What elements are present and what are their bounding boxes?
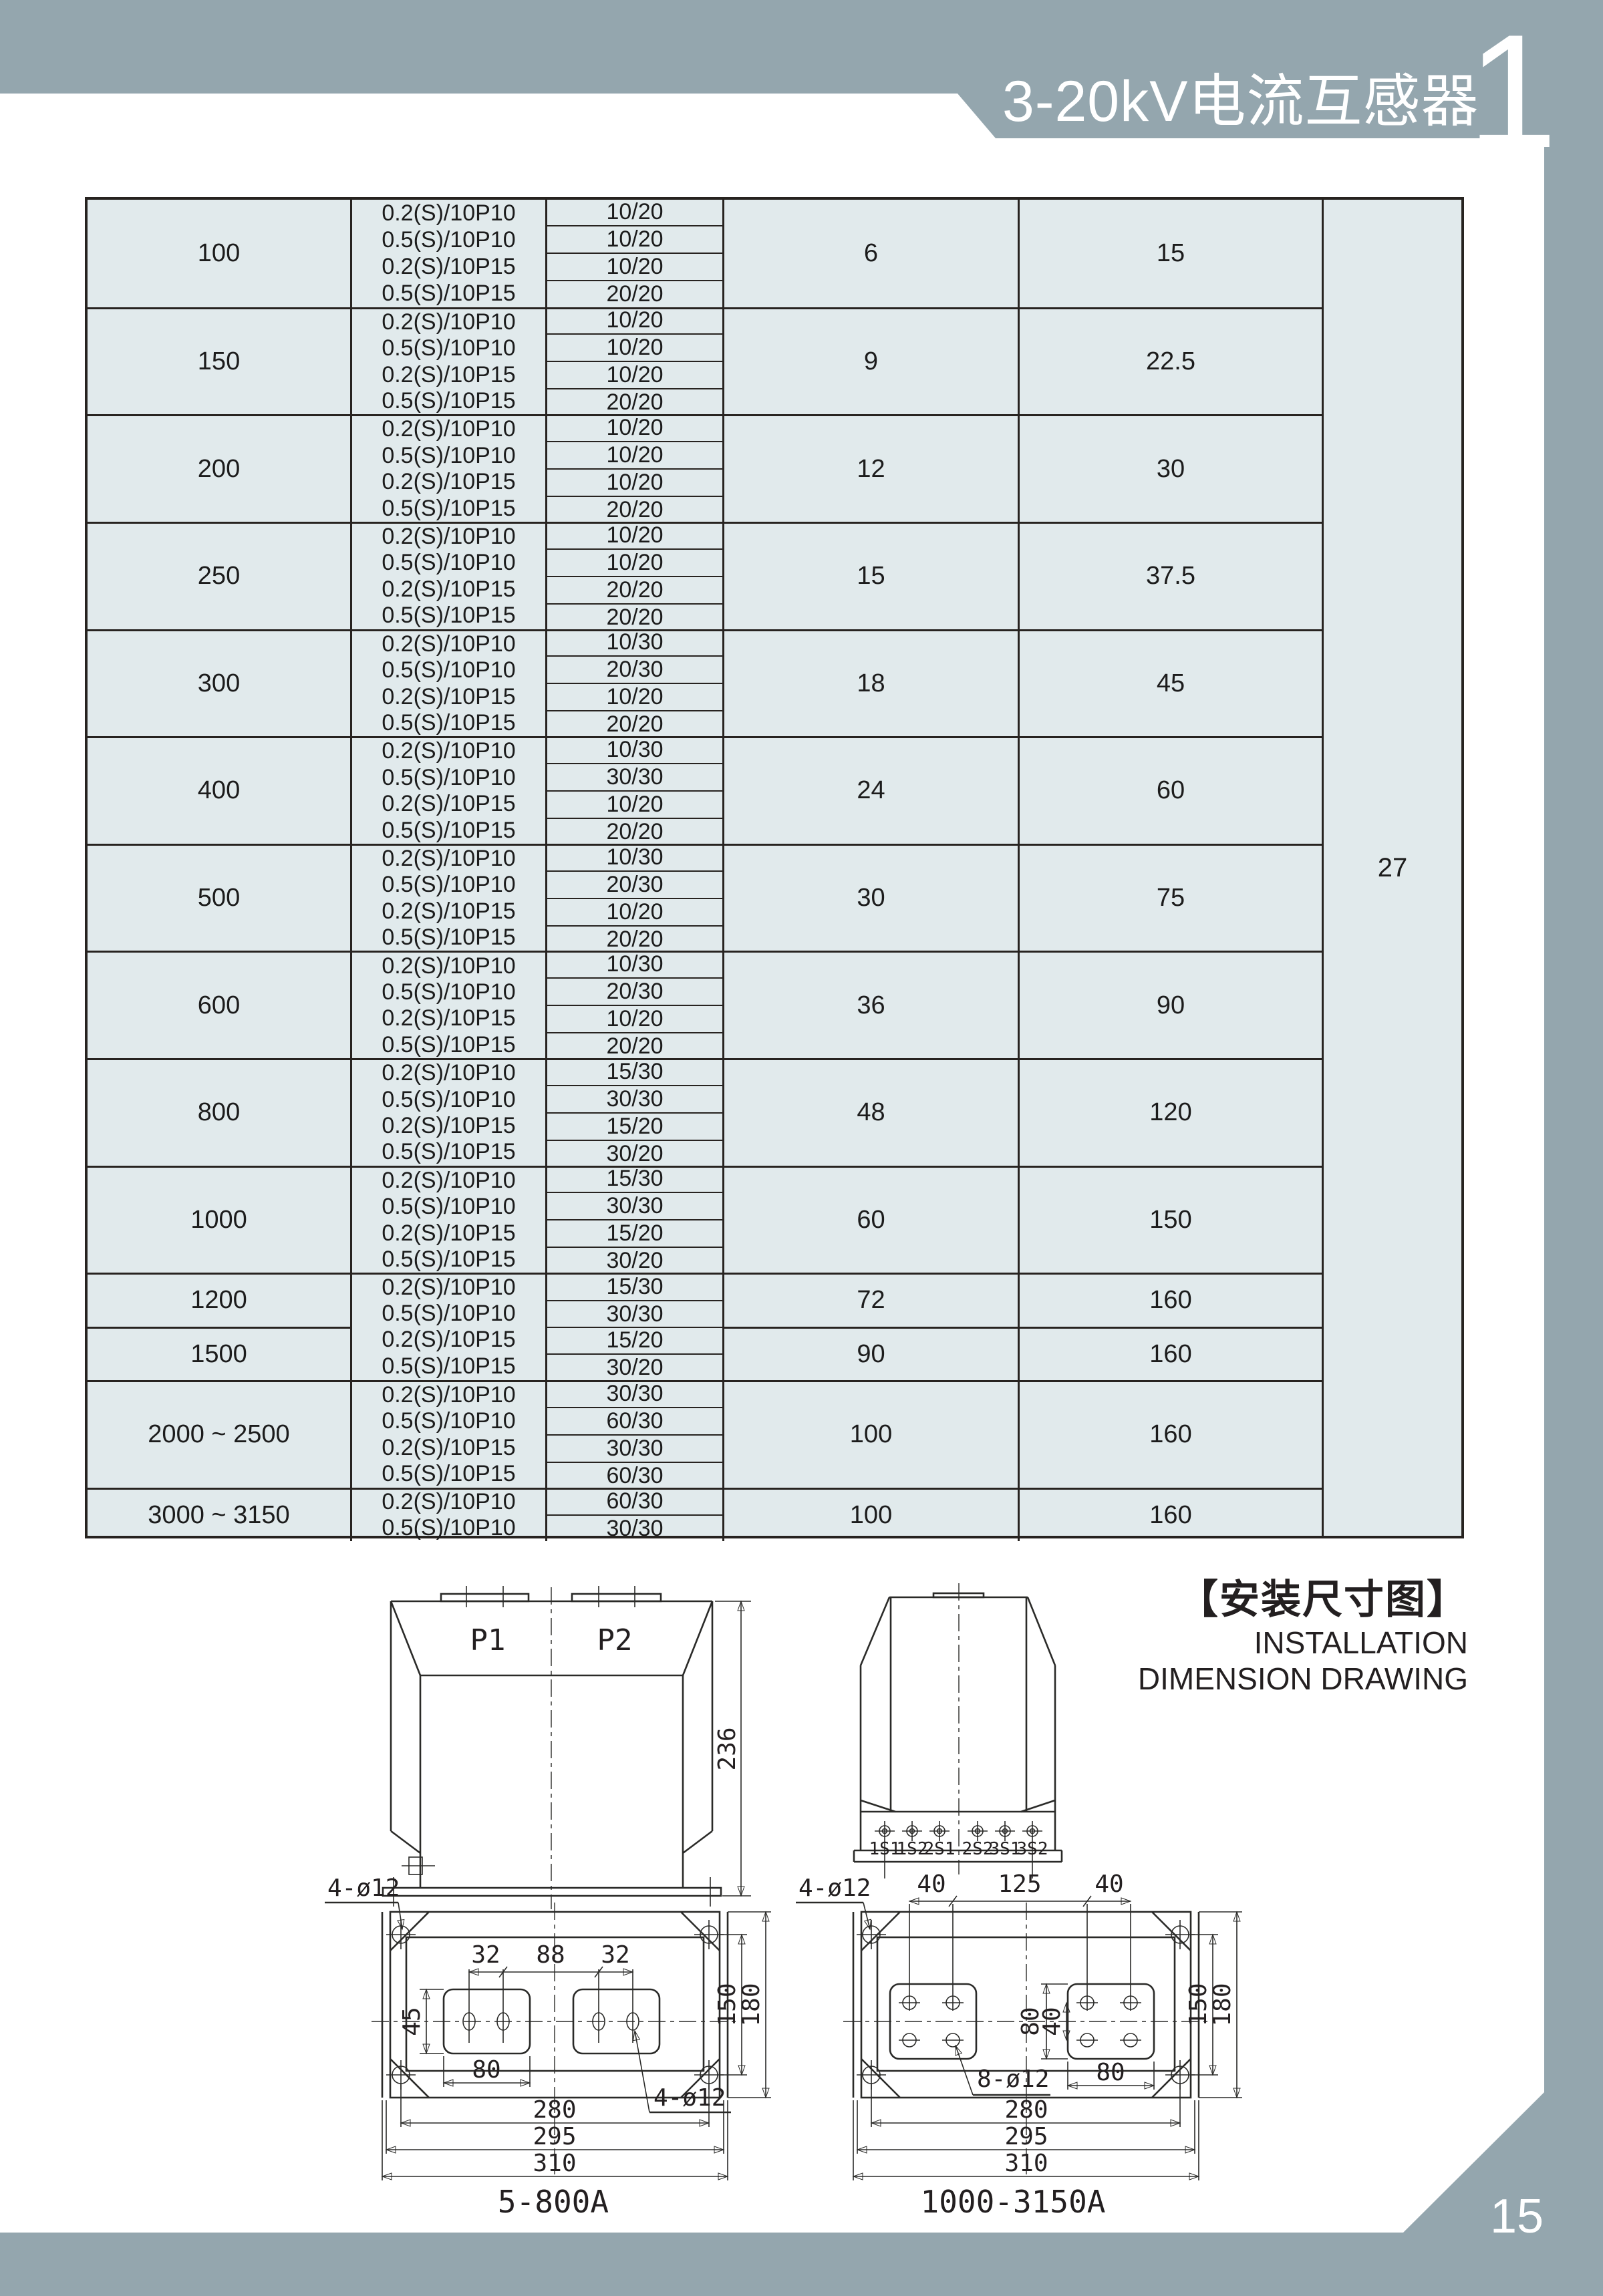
ratio-line: 30/30: [547, 1301, 722, 1327]
dim-40v: 40: [1038, 2007, 1066, 2035]
accuracy-class-line: 0.5(S)/10P10: [352, 872, 545, 898]
accuracy-class-cell: 0.2(S)/10P100.5(S)/10P100.2(S)/10P150.5(…: [352, 629, 547, 737]
ratio-line: 10/20: [547, 899, 722, 927]
accuracy-class-cell: 0.2(S)/10P100.5(S)/10P100.2(S)/10P150.5(…: [352, 1380, 547, 1488]
ratio-cell: 10/3020/3010/2020/20: [547, 629, 724, 737]
accuracy-class-cell: 0.2(S)/10P100.5(S)/10P100.2(S)/10P150.5(…: [352, 414, 547, 522]
ratio-cell: 10/3030/3010/2020/20: [547, 736, 724, 844]
value-col4-cell: 12: [724, 414, 1020, 522]
ratio-cell: 10/2010/2020/2020/20: [547, 522, 724, 629]
accuracy-class-line: 0.5(S)/10P15: [352, 1461, 545, 1487]
terminal-label-3s1: 3S1: [990, 1839, 1021, 1859]
table-group-row: 4000.2(S)/10P100.5(S)/10P100.2(S)/10P150…: [88, 736, 1322, 844]
accuracy-class-line: 0.5(S)/10P10: [352, 550, 545, 576]
accuracy-class-line: 0.2(S)/10P10: [352, 1060, 545, 1086]
value-col5-cell: 30: [1020, 414, 1322, 522]
accuracy-class-cell: 0.2(S)/10P100.5(S)/10P10: [352, 1273, 547, 1326]
accuracy-class-line: 0.5(S)/10P10: [352, 226, 545, 253]
dim-180: 180: [1209, 1983, 1236, 2026]
ratio-cell: 10/2010/2010/2020/20: [547, 200, 724, 307]
current-cell: 800: [88, 1058, 352, 1166]
ratio-line: 30/30: [547, 764, 722, 792]
ratio-line: 20/20: [547, 281, 722, 307]
dim-45: 45: [398, 2007, 426, 2035]
ratio-cell: 15/2030/20: [547, 1327, 724, 1380]
ratio-line: 20/20: [547, 1033, 722, 1059]
side-tab-bar: [1544, 0, 1603, 2296]
dim-88: 88: [536, 1941, 565, 1969]
value-col5-cell: 37.5: [1020, 522, 1322, 629]
dim-40b: 40: [1095, 1870, 1123, 1898]
accuracy-class-line: 0.2(S)/10P10: [352, 846, 545, 872]
ratio-line: 20/30: [547, 657, 722, 684]
accuracy-class-line: 0.2(S)/10P10: [352, 1168, 545, 1194]
dim-80: 80: [1096, 2059, 1125, 2086]
ratio-line: 60/30: [547, 1463, 722, 1489]
accuracy-class-line: 0.5(S)/10P15: [352, 925, 545, 951]
current-cell: 250: [88, 522, 352, 629]
table-group-row: 15000.2(S)/10P150.5(S)/10P1515/2030/2090…: [88, 1327, 1322, 1380]
dim-180: 180: [738, 1983, 765, 2026]
accuracy-class-line: 0.5(S)/10P10: [352, 1301, 545, 1327]
label-p1: P1: [470, 1623, 506, 1657]
ratio-line: 30/20: [547, 1141, 722, 1167]
page-number: 15: [1490, 2192, 1544, 2241]
ratio-line: 20/30: [547, 872, 722, 899]
side-view-drawing: 1S1 1S2 2S1 2S2 3S1 3S2: [829, 1570, 1263, 1891]
value-col4-cell: 36: [724, 951, 1020, 1058]
callout-8xd12: 8-ø12: [977, 2066, 1049, 2093]
ratio-line: 10/30: [547, 951, 722, 979]
ratio-line: 30/30: [547, 1381, 722, 1408]
accuracy-class-line: 0.5(S)/10P10: [352, 979, 545, 1005]
accuracy-class-line: 0.2(S)/10P10: [352, 738, 545, 764]
ratio-line: 20/20: [547, 711, 722, 737]
accuracy-class-line: 0.2(S)/10P10: [352, 309, 545, 335]
accuracy-class-line: 0.2(S)/10P15: [352, 469, 545, 495]
accuracy-class-line: 0.5(S)/10P15: [352, 280, 545, 307]
dim-150: 150: [714, 1983, 741, 2026]
ratio-cell: 10/3020/3010/2020/20: [547, 951, 724, 1058]
table-group-row: 2500.2(S)/10P100.5(S)/10P100.2(S)/10P150…: [88, 522, 1322, 629]
accuracy-class-line: 0.5(S)/10P10: [352, 1408, 545, 1434]
ratio-line: 10/20: [547, 1006, 722, 1033]
ratio-cell: 15/3030/3015/2030/20: [547, 1166, 724, 1273]
callout-4xd12-mid: 4-ø12: [653, 2084, 726, 2112]
value-col4-cell: 9: [724, 307, 1020, 415]
accuracy-class-line: 0.5(S)/10P15: [352, 603, 545, 629]
ratio-line: 15/20: [547, 1220, 722, 1248]
ratio-line: 10/20: [547, 415, 722, 442]
accuracy-class-line: 0.2(S)/10P15: [352, 577, 545, 603]
value-col4-cell: 90: [724, 1327, 1020, 1380]
ratio-line: 30/30: [547, 1086, 722, 1114]
value-col4-cell: 6: [724, 200, 1020, 307]
ratio-cell: 15/3030/30: [547, 1273, 724, 1326]
dim-295: 295: [1004, 2123, 1048, 2150]
value-col5-cell: 90: [1020, 951, 1322, 1058]
value-col4-cell: 30: [724, 844, 1020, 951]
dim-150: 150: [1185, 1983, 1212, 2026]
current-cell: 2000 ~ 2500: [88, 1380, 352, 1488]
accuracy-class-line: 0.2(S)/10P15: [352, 1220, 545, 1246]
value-col4-cell: 18: [724, 629, 1020, 737]
footer-band: [0, 2233, 1603, 2296]
ratio-line: 60/30: [547, 1408, 722, 1436]
ratings-table-body: 1000.2(S)/10P100.5(S)/10P100.2(S)/10P150…: [88, 200, 1322, 1536]
accuracy-class-line: 0.5(S)/10P10: [352, 335, 545, 361]
ratio-line: 30/30: [547, 1193, 722, 1220]
caption-1000-3150a: 1000-3150A: [921, 2184, 1106, 2220]
value-col5-cell: 15: [1020, 200, 1322, 307]
ratio-line: 10/20: [547, 684, 722, 711]
plan-drawing-5-800a: 32 88 32 45 80 4-ø12 4-ø12 150 180 280: [314, 1864, 788, 2225]
dim-295: 295: [533, 2123, 576, 2150]
table-group-row: 8000.2(S)/10P100.5(S)/10P100.2(S)/10P150…: [88, 1058, 1322, 1166]
value-col5-cell: 160: [1020, 1488, 1322, 1541]
ratio-line: 10/20: [547, 522, 722, 550]
accuracy-class-line: 0.2(S)/10P15: [352, 253, 545, 280]
accuracy-class-line: 0.5(S)/10P15: [352, 388, 545, 414]
ratio-line: 10/30: [547, 737, 722, 764]
ratio-line: 15/30: [547, 1166, 722, 1193]
ratio-line: 20/20: [547, 497, 722, 523]
ratio-line: 15/30: [547, 1274, 722, 1301]
dim-310: 310: [533, 2150, 576, 2177]
accuracy-class-cell: 0.2(S)/10P100.5(S)/10P100.2(S)/10P150.5(…: [352, 844, 547, 951]
accuracy-class-line: 0.2(S)/10P10: [352, 524, 545, 550]
table-group-row: 12000.2(S)/10P100.5(S)/10P1015/3030/3072…: [88, 1273, 1322, 1326]
current-cell: 300: [88, 629, 352, 737]
current-cell: 600: [88, 951, 352, 1058]
dim-280: 280: [533, 2096, 576, 2124]
accuracy-class-line: 0.2(S)/10P10: [352, 953, 545, 979]
ratio-line: 10/20: [547, 335, 722, 362]
ratio-line: 20/20: [547, 389, 722, 416]
accuracy-class-line: 0.2(S)/10P10: [352, 416, 545, 442]
accuracy-class-cell: 0.2(S)/10P100.5(S)/10P100.2(S)/10P150.5(…: [352, 736, 547, 844]
accuracy-class-line: 0.5(S)/10P15: [352, 1247, 545, 1273]
ratio-line: 15/30: [547, 1059, 722, 1086]
accuracy-class-line: 0.2(S)/10P15: [352, 1435, 545, 1461]
catalog-page: 3-20kV电流互感器 1 15 1000.2(S)/10P100.5(S)/1…: [0, 0, 1603, 2296]
ratio-line: 10/20: [547, 470, 722, 497]
current-cell: 3000 ~ 3150: [88, 1488, 352, 1541]
side-value-cell: 27: [1322, 200, 1461, 1536]
terminal-label-2s2: 2S2: [962, 1839, 994, 1859]
table-group-row: 3000.2(S)/10P100.5(S)/10P100.2(S)/10P150…: [88, 629, 1322, 737]
accuracy-class-line: 0.2(S)/10P10: [352, 1382, 545, 1408]
ratio-line: 20/30: [547, 979, 722, 1006]
accuracy-class-line: 0.5(S)/10P10: [352, 657, 545, 683]
ratio-line: 30/20: [547, 1355, 722, 1381]
accuracy-class-line: 0.2(S)/10P10: [352, 1489, 545, 1515]
accuracy-class-line: 0.2(S)/10P15: [352, 1113, 545, 1139]
label-p2: P2: [597, 1623, 633, 1657]
ratio-line: 30/30: [547, 1516, 722, 1542]
ratio-cell: 10/3020/3010/2020/20: [547, 844, 724, 951]
terminal-bump-right: [572, 1594, 661, 1601]
primary-pad-left: [890, 1984, 976, 2059]
ratio-line: 10/20: [547, 307, 722, 335]
page-title: 3-20kV电流互感器: [1002, 69, 1537, 134]
accuracy-class-line: 0.5(S)/10P15: [352, 1139, 545, 1165]
current-cell: 400: [88, 736, 352, 844]
ratio-cell: 60/3030/30: [547, 1488, 724, 1541]
ratio-line: 20/20: [547, 819, 722, 845]
ratio-cell: 10/2010/2010/2020/20: [547, 307, 724, 415]
ratings-table: 1000.2(S)/10P100.5(S)/10P100.2(S)/10P150…: [85, 197, 1464, 1538]
table-group-row: 2000 ~ 25000.2(S)/10P100.5(S)/10P100.2(S…: [88, 1380, 1322, 1488]
ratio-line: 10/20: [547, 254, 722, 281]
value-col5-cell: 150: [1020, 1166, 1322, 1273]
value-col5-cell: 160: [1020, 1327, 1322, 1380]
current-cell: 1000: [88, 1166, 352, 1273]
value-col4-cell: 48: [724, 1058, 1020, 1166]
current-cell: 100: [88, 200, 352, 307]
table-group-row: 6000.2(S)/10P100.5(S)/10P100.2(S)/10P150…: [88, 951, 1322, 1058]
table-group-row: 3000 ~ 31500.2(S)/10P100.5(S)/10P1060/30…: [88, 1488, 1322, 1541]
accuracy-class-cell: 0.2(S)/10P150.5(S)/10P15: [352, 1327, 547, 1380]
callout-4xd12-top: 4-ø12: [327, 1874, 400, 1902]
accuracy-class-line: 0.5(S)/10P10: [352, 1515, 545, 1541]
accuracy-class-line: 0.5(S)/10P10: [352, 765, 545, 791]
ratio-line: 30/30: [547, 1436, 722, 1463]
primary-pad-right: [573, 1989, 660, 2054]
terminal-label-2s1: 2S1: [924, 1839, 956, 1859]
accuracy-class-line: 0.5(S)/10P10: [352, 1194, 545, 1220]
terminal-label-3s2: 3S2: [1017, 1839, 1048, 1859]
accuracy-class-cell: 0.2(S)/10P100.5(S)/10P100.2(S)/10P150.5(…: [352, 522, 547, 629]
value-col5-cell: 75: [1020, 844, 1322, 951]
ratio-line: 10/20: [547, 792, 722, 819]
value-col5-cell: 22.5: [1020, 307, 1322, 415]
value-col4-cell: 100: [724, 1488, 1020, 1541]
accuracy-class-line: 0.2(S)/10P15: [352, 898, 545, 925]
value-col4-cell: 72: [724, 1273, 1020, 1326]
ratio-line: 10/20: [547, 226, 722, 254]
accuracy-class-line: 0.2(S)/10P10: [352, 631, 545, 657]
dim-40a: 40: [917, 1870, 945, 1898]
current-cell: 150: [88, 307, 352, 415]
dim-125: 125: [998, 1870, 1041, 1898]
ratio-line: 10/20: [547, 550, 722, 577]
ratio-line: 15/20: [547, 1114, 722, 1141]
mounting-holes: [857, 1920, 1195, 2090]
chapter-number: 1: [1467, 11, 1558, 172]
ratio-line: 10/30: [547, 629, 722, 657]
ratio-cell: 30/3060/3030/3060/30: [547, 1380, 724, 1488]
accuracy-class-line: 0.2(S)/10P10: [352, 200, 545, 226]
ratio-line: 15/20: [547, 1327, 722, 1355]
table-group-row: 1000.2(S)/10P100.5(S)/10P100.2(S)/10P150…: [88, 200, 1322, 307]
value-col4-cell: 24: [724, 736, 1020, 844]
value-col4-cell: 100: [724, 1380, 1020, 1488]
terminal-label-1s1: 1S1: [869, 1839, 901, 1859]
ratio-line: 10/20: [547, 362, 722, 389]
table-group-row: 1500.2(S)/10P100.5(S)/10P100.2(S)/10P150…: [88, 307, 1322, 415]
accuracy-class-cell: 0.2(S)/10P100.5(S)/10P100.2(S)/10P150.5(…: [352, 1058, 547, 1166]
dim-310: 310: [1004, 2150, 1048, 2177]
value-col4-cell: 60: [724, 1166, 1020, 1273]
ratio-line: 10/20: [547, 442, 722, 470]
accuracy-class-line: 0.5(S)/10P10: [352, 443, 545, 469]
plan-drawing-1000-3150a: 40 125 40 80 40 8-ø12 80 4-ø12 150 180: [782, 1864, 1263, 2225]
accuracy-class-line: 0.2(S)/10P15: [352, 1327, 545, 1353]
ratio-cell: 10/2010/2010/2020/20: [547, 414, 724, 522]
accuracy-class-line: 0.2(S)/10P15: [352, 1005, 545, 1031]
dim-236: 236: [714, 1727, 741, 1770]
current-cell: 1500: [88, 1327, 352, 1380]
ratio-line: 20/20: [547, 605, 722, 631]
value-col4-cell: 15: [724, 522, 1020, 629]
accuracy-class-line: 0.5(S)/10P10: [352, 1086, 545, 1112]
table-group-row: 10000.2(S)/10P100.5(S)/10P100.2(S)/10P15…: [88, 1166, 1322, 1273]
accuracy-class-line: 0.5(S)/10P15: [352, 817, 545, 843]
terminal-bump-left: [441, 1594, 529, 1601]
ratio-cell: 15/3030/3015/2030/20: [547, 1058, 724, 1166]
dim-32a: 32: [471, 1941, 500, 1969]
ratio-line: 20/20: [547, 927, 722, 953]
accuracy-class-cell: 0.2(S)/10P100.5(S)/10P100.2(S)/10P150.5(…: [352, 1166, 547, 1273]
caption-5-800a: 5-800A: [498, 2184, 609, 2220]
accuracy-class-line: 0.2(S)/10P15: [352, 791, 545, 817]
value-col5-cell: 60: [1020, 736, 1322, 844]
accuracy-class-line: 0.5(S)/10P15: [352, 710, 545, 736]
value-col5-cell: 160: [1020, 1380, 1322, 1488]
terminal-label-1s2: 1S2: [897, 1839, 928, 1859]
accuracy-class-cell: 0.2(S)/10P100.5(S)/10P10: [352, 1488, 547, 1541]
accuracy-class-line: 0.5(S)/10P15: [352, 495, 545, 521]
ratio-line: 20/20: [547, 577, 722, 605]
dim-280: 280: [1004, 2096, 1048, 2124]
accuracy-class-cell: 0.2(S)/10P100.5(S)/10P100.2(S)/10P150.5(…: [352, 200, 547, 307]
accuracy-class-line: 0.5(S)/10P15: [352, 1353, 545, 1380]
accuracy-class-line: 0.2(S)/10P15: [352, 361, 545, 387]
callout-4xd12-top: 4-ø12: [798, 1874, 871, 1902]
current-cell: 200: [88, 414, 352, 522]
accuracy-class-line: 0.5(S)/10P15: [352, 1032, 545, 1058]
ratio-line: 30/20: [547, 1248, 722, 1274]
value-col5-cell: 120: [1020, 1058, 1322, 1166]
value-col5-cell: 160: [1020, 1273, 1322, 1326]
table-group-row: 2000.2(S)/10P100.5(S)/10P100.2(S)/10P150…: [88, 414, 1322, 522]
table-group-row: 5000.2(S)/10P100.5(S)/10P100.2(S)/10P150…: [88, 844, 1322, 951]
accuracy-class-line: 0.2(S)/10P15: [352, 683, 545, 709]
current-cell: 1200: [88, 1273, 352, 1326]
ratio-line: 10/20: [547, 199, 722, 226]
dim-32b: 32: [601, 1941, 629, 1969]
accuracy-class-cell: 0.2(S)/10P100.5(S)/10P100.2(S)/10P150.5(…: [352, 951, 547, 1058]
value-col5-cell: 45: [1020, 629, 1322, 737]
ratio-line: 10/30: [547, 844, 722, 872]
accuracy-class-cell: 0.2(S)/10P100.5(S)/10P100.2(S)/10P150.5(…: [352, 307, 547, 415]
current-cell: 500: [88, 844, 352, 951]
accuracy-class-line: 0.2(S)/10P10: [352, 1275, 545, 1301]
ratio-line: 60/30: [547, 1488, 722, 1516]
dim-80: 80: [472, 2056, 500, 2084]
